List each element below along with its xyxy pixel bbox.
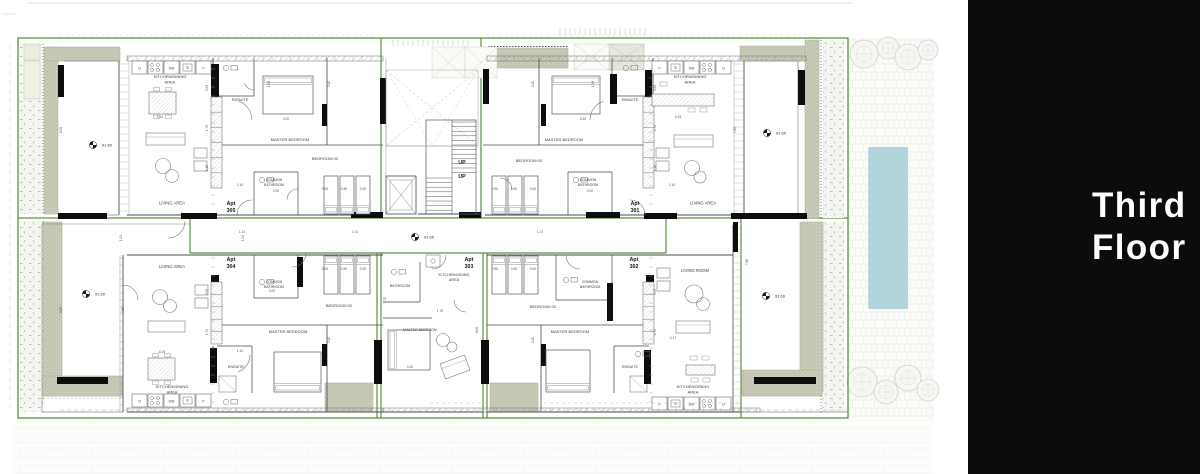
svg-text:3.53: 3.53 <box>205 85 209 91</box>
svg-text:304: 304 <box>227 264 236 270</box>
svg-text:0.90: 0.90 <box>59 307 63 313</box>
svg-text:1.10: 1.10 <box>205 165 209 171</box>
svg-text:2.00: 2.00 <box>273 189 280 193</box>
svg-text:AREA: AREA <box>685 80 696 85</box>
svg-text:AREA: AREA <box>449 278 460 282</box>
svg-text:1.24: 1.24 <box>241 235 245 241</box>
svg-text:3.53: 3.53 <box>205 289 209 295</box>
svg-text:1.70: 1.70 <box>205 329 209 335</box>
svg-text:303: 303 <box>465 264 474 270</box>
svg-text:0.90: 0.90 <box>322 187 329 191</box>
svg-text:0.90: 0.90 <box>360 187 367 191</box>
svg-text:91.65: 91.65 <box>424 235 435 240</box>
svg-text:7.68: 7.68 <box>733 127 737 133</box>
svg-text:302: 302 <box>630 264 639 270</box>
svg-text:0.90: 0.90 <box>511 187 518 191</box>
svg-text:4.19: 4.19 <box>675 115 682 119</box>
svg-text:91.60: 91.60 <box>775 294 786 299</box>
svg-text:COMMON: COMMON <box>266 280 283 284</box>
svg-text:ENSUITE: ENSUITE <box>232 97 249 102</box>
svg-text:1.98: 1.98 <box>591 81 595 87</box>
svg-text:3.53: 3.53 <box>653 289 657 295</box>
svg-text:1.14: 1.14 <box>352 230 358 234</box>
svg-text:0.90: 0.90 <box>530 187 537 191</box>
svg-text:Apt: Apt <box>630 257 639 263</box>
svg-text:BATHROOM: BATHROOM <box>390 284 411 288</box>
svg-text:301: 301 <box>631 208 640 214</box>
svg-text:O: O <box>138 67 141 71</box>
svg-text:4.15: 4.15 <box>159 350 166 354</box>
svg-text:0.90: 0.90 <box>530 267 537 271</box>
svg-text:KITCHEN/DINING: KITCHEN/DINING <box>154 74 187 79</box>
svg-text:UP: UP <box>458 174 466 180</box>
svg-text:BEDROOM 02: BEDROOM 02 <box>326 303 353 308</box>
svg-text:F: F <box>202 400 204 404</box>
svg-text:3.10: 3.10 <box>327 337 331 343</box>
svg-text:2.00: 2.00 <box>269 289 276 293</box>
svg-text:LIVING AREA: LIVING AREA <box>159 201 185 206</box>
svg-text:0.90: 0.90 <box>511 267 518 271</box>
svg-text:1.70: 1.70 <box>383 297 387 303</box>
svg-text:MASTER BEDROOM: MASTER BEDROOM <box>403 328 437 332</box>
svg-text:BATHROOM: BATHROOM <box>264 183 284 187</box>
svg-text:KITCHEN/DINING: KITCHEN/DINING <box>674 74 707 79</box>
svg-text:1.10: 1.10 <box>653 165 657 171</box>
svg-text:0.90: 0.90 <box>341 187 348 191</box>
svg-text:COMMON: COMMON <box>582 280 599 284</box>
svg-text:BEDROOM 02: BEDROOM 02 <box>516 158 543 163</box>
svg-text:BATHROOM: BATHROOM <box>264 285 284 289</box>
svg-text:KITCHEN/DINING: KITCHEN/DINING <box>156 384 189 389</box>
svg-text:DW: DW <box>169 67 175 71</box>
svg-text:O: O <box>722 67 725 71</box>
svg-text:DW: DW <box>169 400 175 404</box>
svg-text:6.00: 6.00 <box>475 327 479 333</box>
svg-text:BEDROOM 02: BEDROOM 02 <box>312 156 339 161</box>
svg-text:1.14: 1.14 <box>537 230 543 234</box>
svg-text:0.90: 0.90 <box>59 127 63 133</box>
svg-text:BEDROOM 02: BEDROOM 02 <box>530 304 557 309</box>
svg-text:4.17: 4.17 <box>670 336 677 340</box>
svg-text:LIVING ROOM: LIVING ROOM <box>681 268 709 273</box>
svg-text:3.53: 3.53 <box>653 85 657 91</box>
svg-text:ENSUITE: ENSUITE <box>228 365 245 369</box>
svg-text:UP: UP <box>458 160 466 166</box>
svg-text:MASTER BEDROOM: MASTER BEDROOM <box>269 329 307 334</box>
svg-text:KITCHEN/DINING: KITCHEN/DINING <box>677 384 710 389</box>
svg-text:3.10: 3.10 <box>531 337 535 343</box>
svg-text:AREA: AREA <box>167 390 178 395</box>
svg-text:LIVING AREA: LIVING AREA <box>690 201 716 206</box>
svg-text:1.70: 1.70 <box>653 125 657 131</box>
svg-text:MASTER BEDROOM: MASTER BEDROOM <box>545 137 583 142</box>
svg-text:F: F <box>658 67 660 71</box>
svg-text:AREA: AREA <box>165 80 176 85</box>
svg-text:91.60: 91.60 <box>95 292 106 297</box>
svg-text:1.70: 1.70 <box>437 309 444 313</box>
svg-text:0.90: 0.90 <box>360 267 367 271</box>
svg-text:3.20: 3.20 <box>283 117 290 121</box>
svg-text:1.10: 1.10 <box>237 183 244 187</box>
svg-text:1.10: 1.10 <box>669 183 676 187</box>
svg-text:ENSUITE: ENSUITE <box>622 97 639 102</box>
svg-text:7.68: 7.68 <box>121 307 125 313</box>
svg-text:3.20: 3.20 <box>407 365 414 369</box>
svg-text:F: F <box>202 67 204 71</box>
svg-text:1.24: 1.24 <box>119 235 123 241</box>
svg-text:0.90: 0.90 <box>322 267 329 271</box>
svg-text:0.90: 0.90 <box>341 267 348 271</box>
svg-text:LIVING AREA: LIVING AREA <box>159 264 185 269</box>
svg-text:AREA: AREA <box>688 390 699 395</box>
svg-text:1.70: 1.70 <box>205 125 209 131</box>
svg-text:KITCHEN/DINING: KITCHEN/DINING <box>438 273 469 277</box>
svg-text:4.12: 4.12 <box>157 115 164 119</box>
svg-text:BATHROOM: BATHROOM <box>578 183 598 187</box>
svg-text:Apt: Apt <box>227 201 236 207</box>
svg-text:COMMON: COMMON <box>266 178 283 182</box>
svg-text:Apt: Apt <box>631 201 640 207</box>
svg-text:BATHROOM: BATHROOM <box>580 285 600 289</box>
svg-text:7.68: 7.68 <box>745 259 749 265</box>
svg-text:COMMON: COMMON <box>580 178 597 182</box>
svg-text:3.10: 3.10 <box>327 81 331 87</box>
svg-text:0.90: 0.90 <box>492 267 499 271</box>
svg-text:O: O <box>138 400 141 404</box>
svg-text:DW: DW <box>689 67 695 71</box>
svg-text:Apt: Apt <box>465 257 474 263</box>
svg-text:3.10: 3.10 <box>531 81 535 87</box>
svg-text:1.98: 1.98 <box>267 81 271 87</box>
svg-text:91.60: 91.60 <box>102 143 113 148</box>
svg-text:ENSUITE: ENSUITE <box>622 365 639 369</box>
svg-text:MASTER BEDROOM: MASTER BEDROOM <box>551 329 589 334</box>
svg-text:1.10: 1.10 <box>237 349 244 353</box>
svg-text:305: 305 <box>227 208 236 214</box>
svg-text:1.14: 1.14 <box>239 230 245 234</box>
svg-text:1.70: 1.70 <box>653 329 657 335</box>
svg-text:2.00: 2.00 <box>587 189 594 193</box>
svg-text:MASTER BEDROOM: MASTER BEDROOM <box>271 137 309 142</box>
svg-text:Apt: Apt <box>227 257 236 263</box>
svg-text:0.90: 0.90 <box>492 187 499 191</box>
svg-text:3.20: 3.20 <box>580 117 587 121</box>
svg-text:91.60: 91.60 <box>776 131 787 136</box>
